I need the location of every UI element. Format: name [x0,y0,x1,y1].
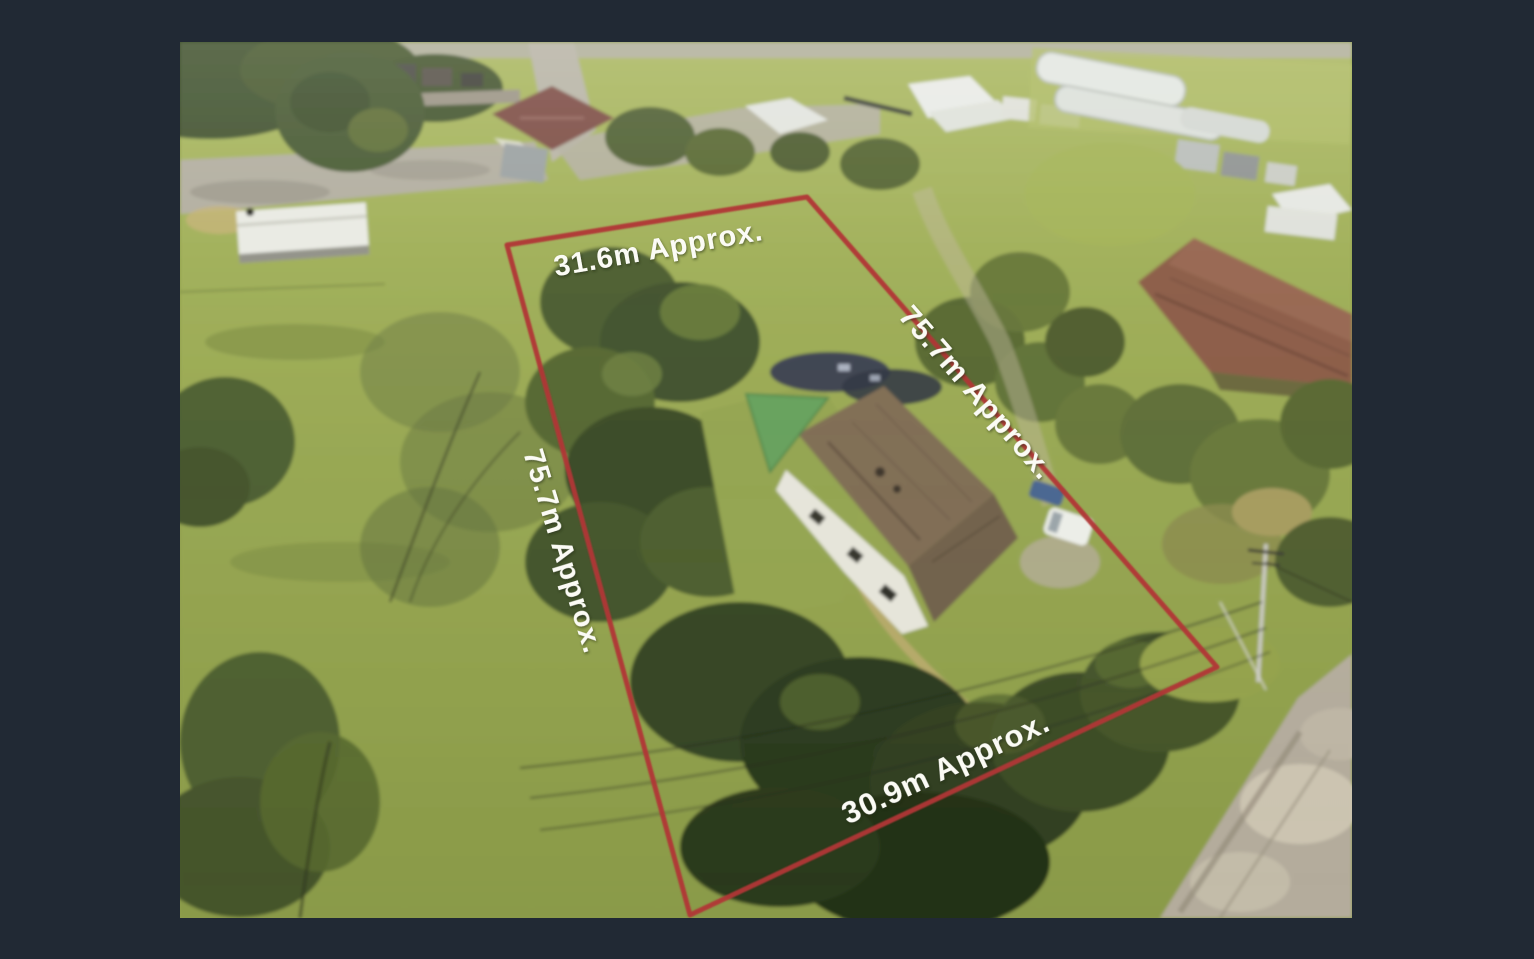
dark-frame: 31.6m Approx. 75.7m Approx. 75.7m Approx… [0,0,1534,959]
aerial-scene [180,42,1352,918]
aerial-property-photo: 31.6m Approx. 75.7m Approx. 75.7m Approx… [180,42,1352,918]
photo-haze [180,42,1352,918]
